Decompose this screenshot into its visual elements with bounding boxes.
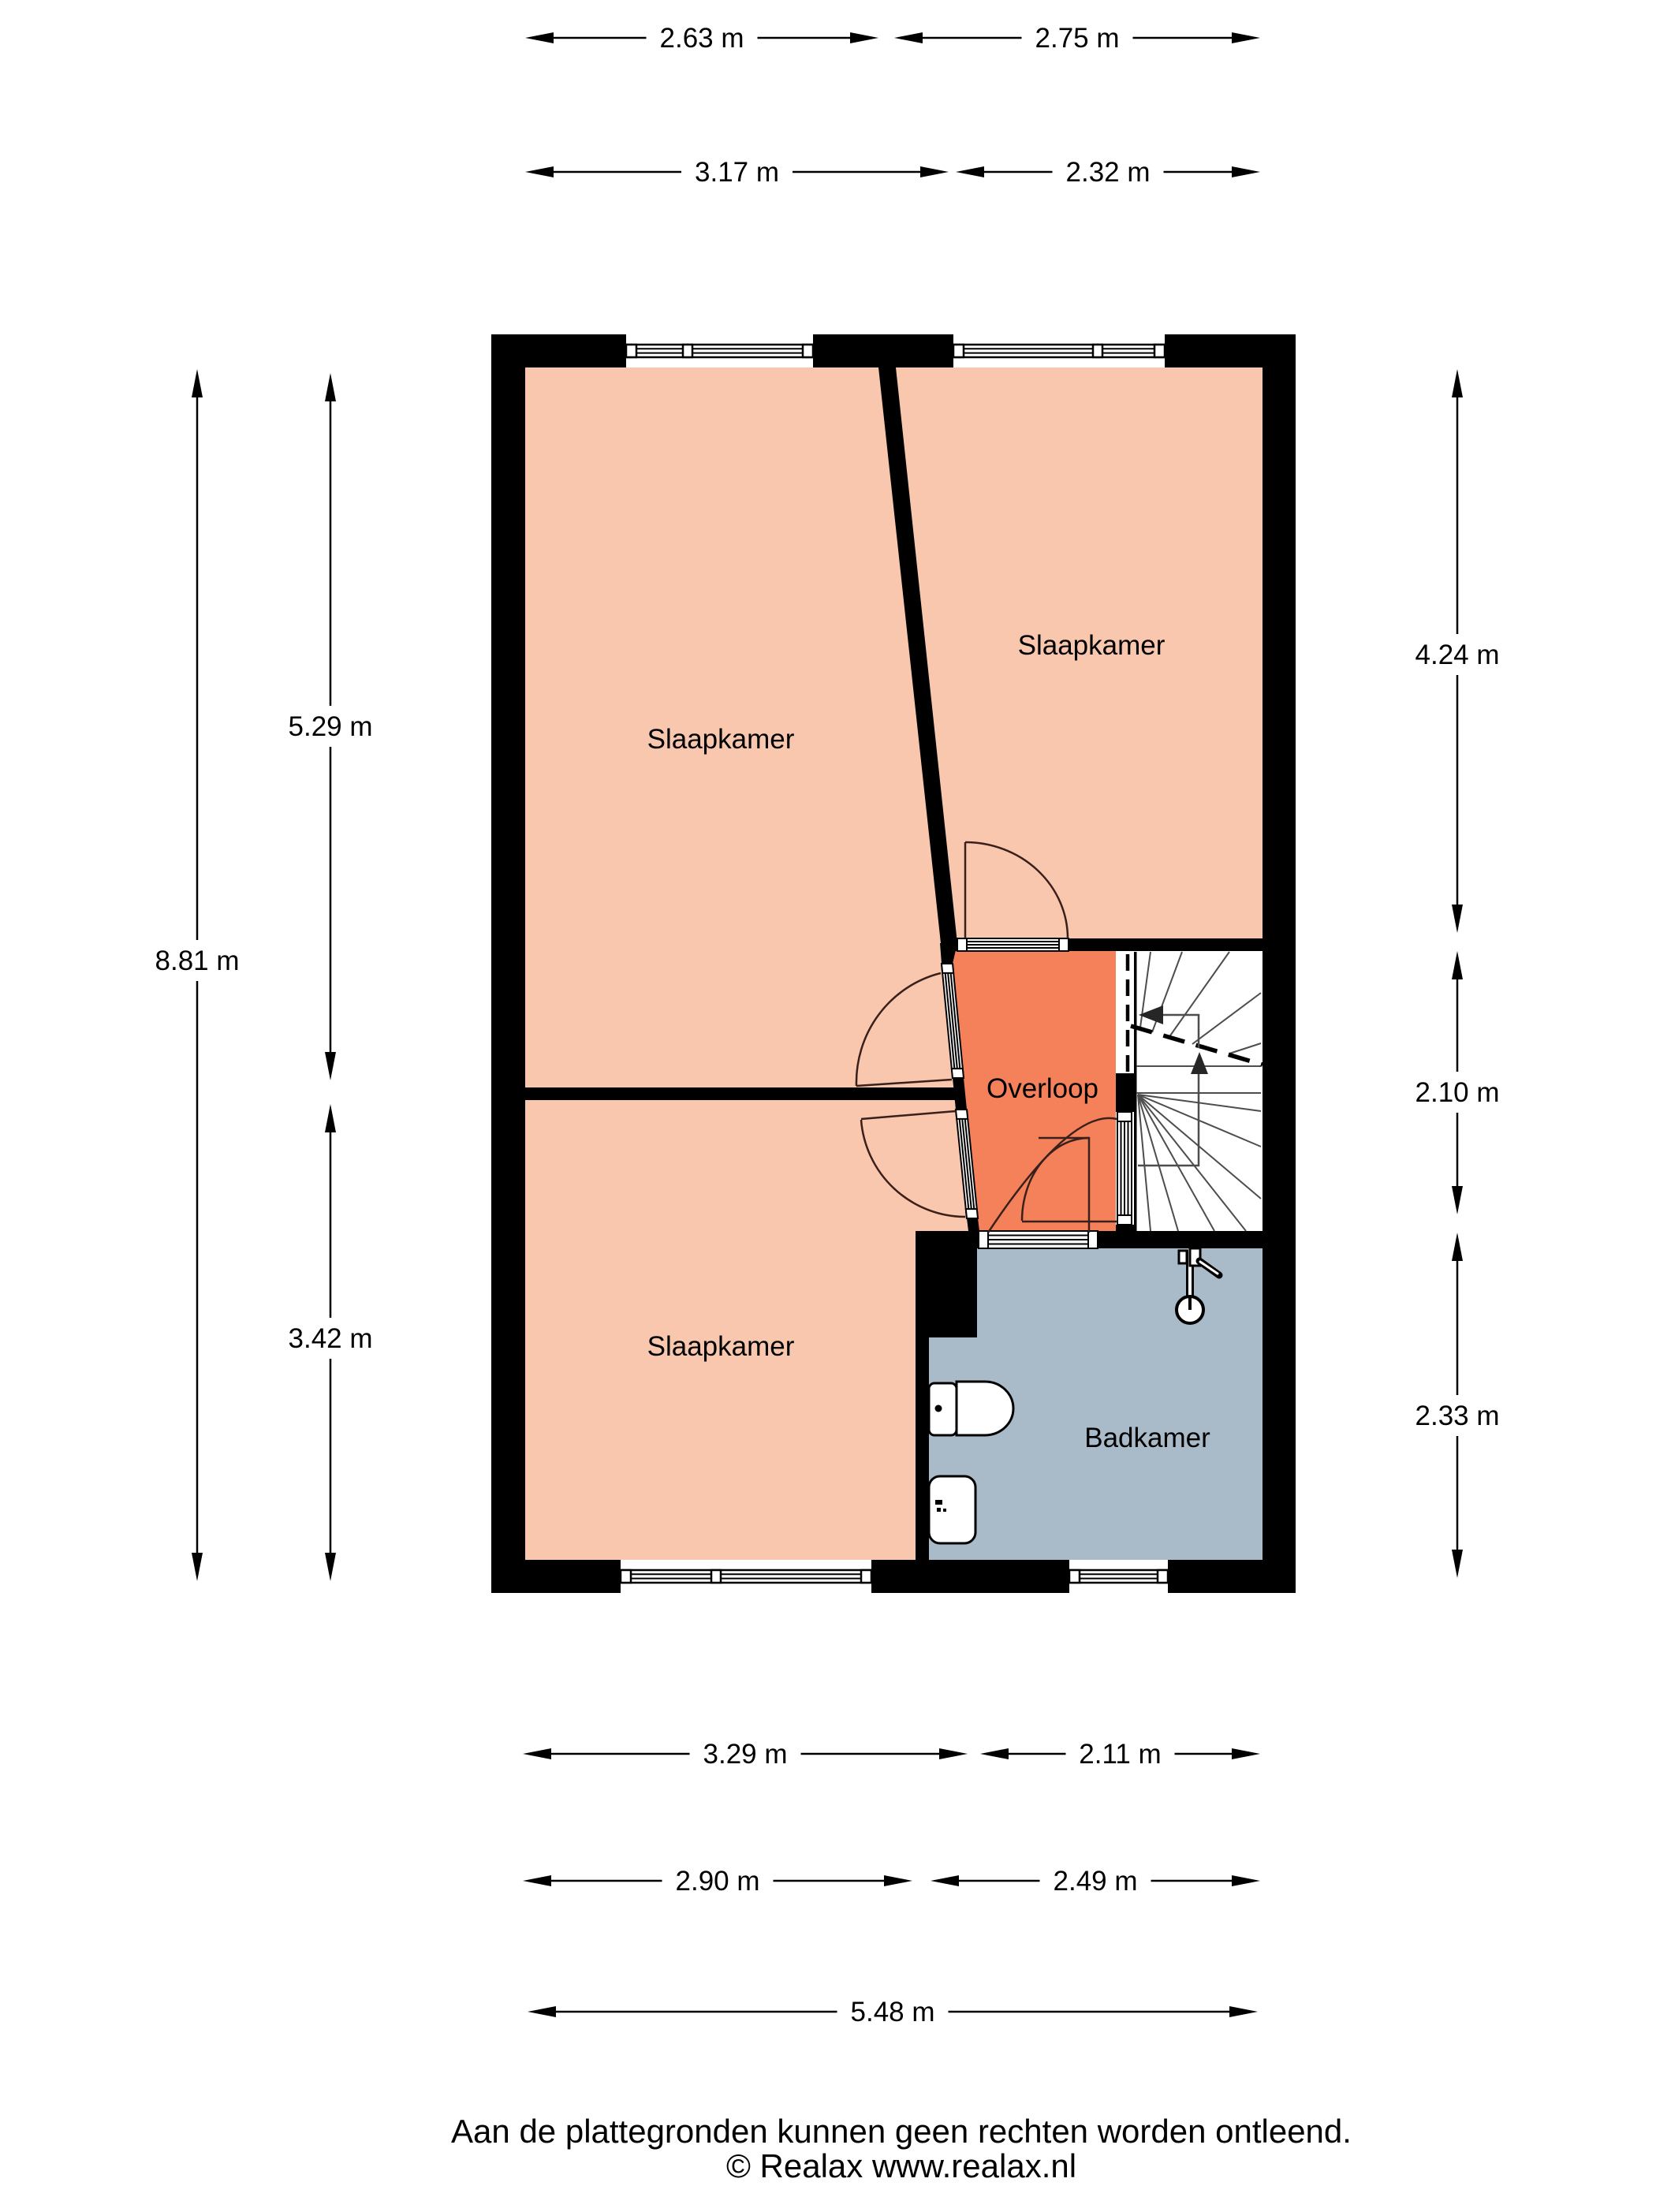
svg-text:2.33 m: 2.33 m [1415, 1401, 1500, 1431]
svg-text:Slaapkamer: Slaapkamer [1018, 630, 1166, 661]
svg-text:Overloop: Overloop [987, 1073, 1098, 1104]
svg-text:2.63 m: 2.63 m [660, 23, 744, 54]
svg-text:Badkamer: Badkamer [1084, 1423, 1210, 1453]
svg-text:2.32 m: 2.32 m [1066, 157, 1151, 188]
svg-text:Slaapkamer: Slaapkamer [647, 724, 795, 755]
svg-text:5.29 m: 5.29 m [289, 711, 373, 742]
svg-text:2.90 m: 2.90 m [676, 1866, 760, 1897]
svg-text:8.81 m: 8.81 m [155, 946, 240, 976]
svg-text:Slaapkamer: Slaapkamer [647, 1331, 795, 1362]
svg-text:© Realax www.realax.nl: © Realax www.realax.nl [726, 2147, 1076, 2184]
svg-text:2.75 m: 2.75 m [1035, 23, 1120, 54]
svg-text:Aan de plattegronden kunnen ge: Aan de plattegronden kunnen geen rechten… [451, 2113, 1352, 2150]
svg-text:2.10 m: 2.10 m [1415, 1077, 1500, 1108]
svg-text:2.11 m: 2.11 m [1079, 1739, 1161, 1770]
svg-text:5.48 m: 5.48 m [851, 1997, 935, 2027]
svg-text:3.29 m: 3.29 m [703, 1739, 788, 1770]
svg-text:4.24 m: 4.24 m [1415, 640, 1500, 670]
svg-text:3.42 m: 3.42 m [289, 1323, 373, 1354]
svg-text:3.17 m: 3.17 m [695, 157, 779, 188]
svg-text:2.49 m: 2.49 m [1054, 1866, 1138, 1897]
